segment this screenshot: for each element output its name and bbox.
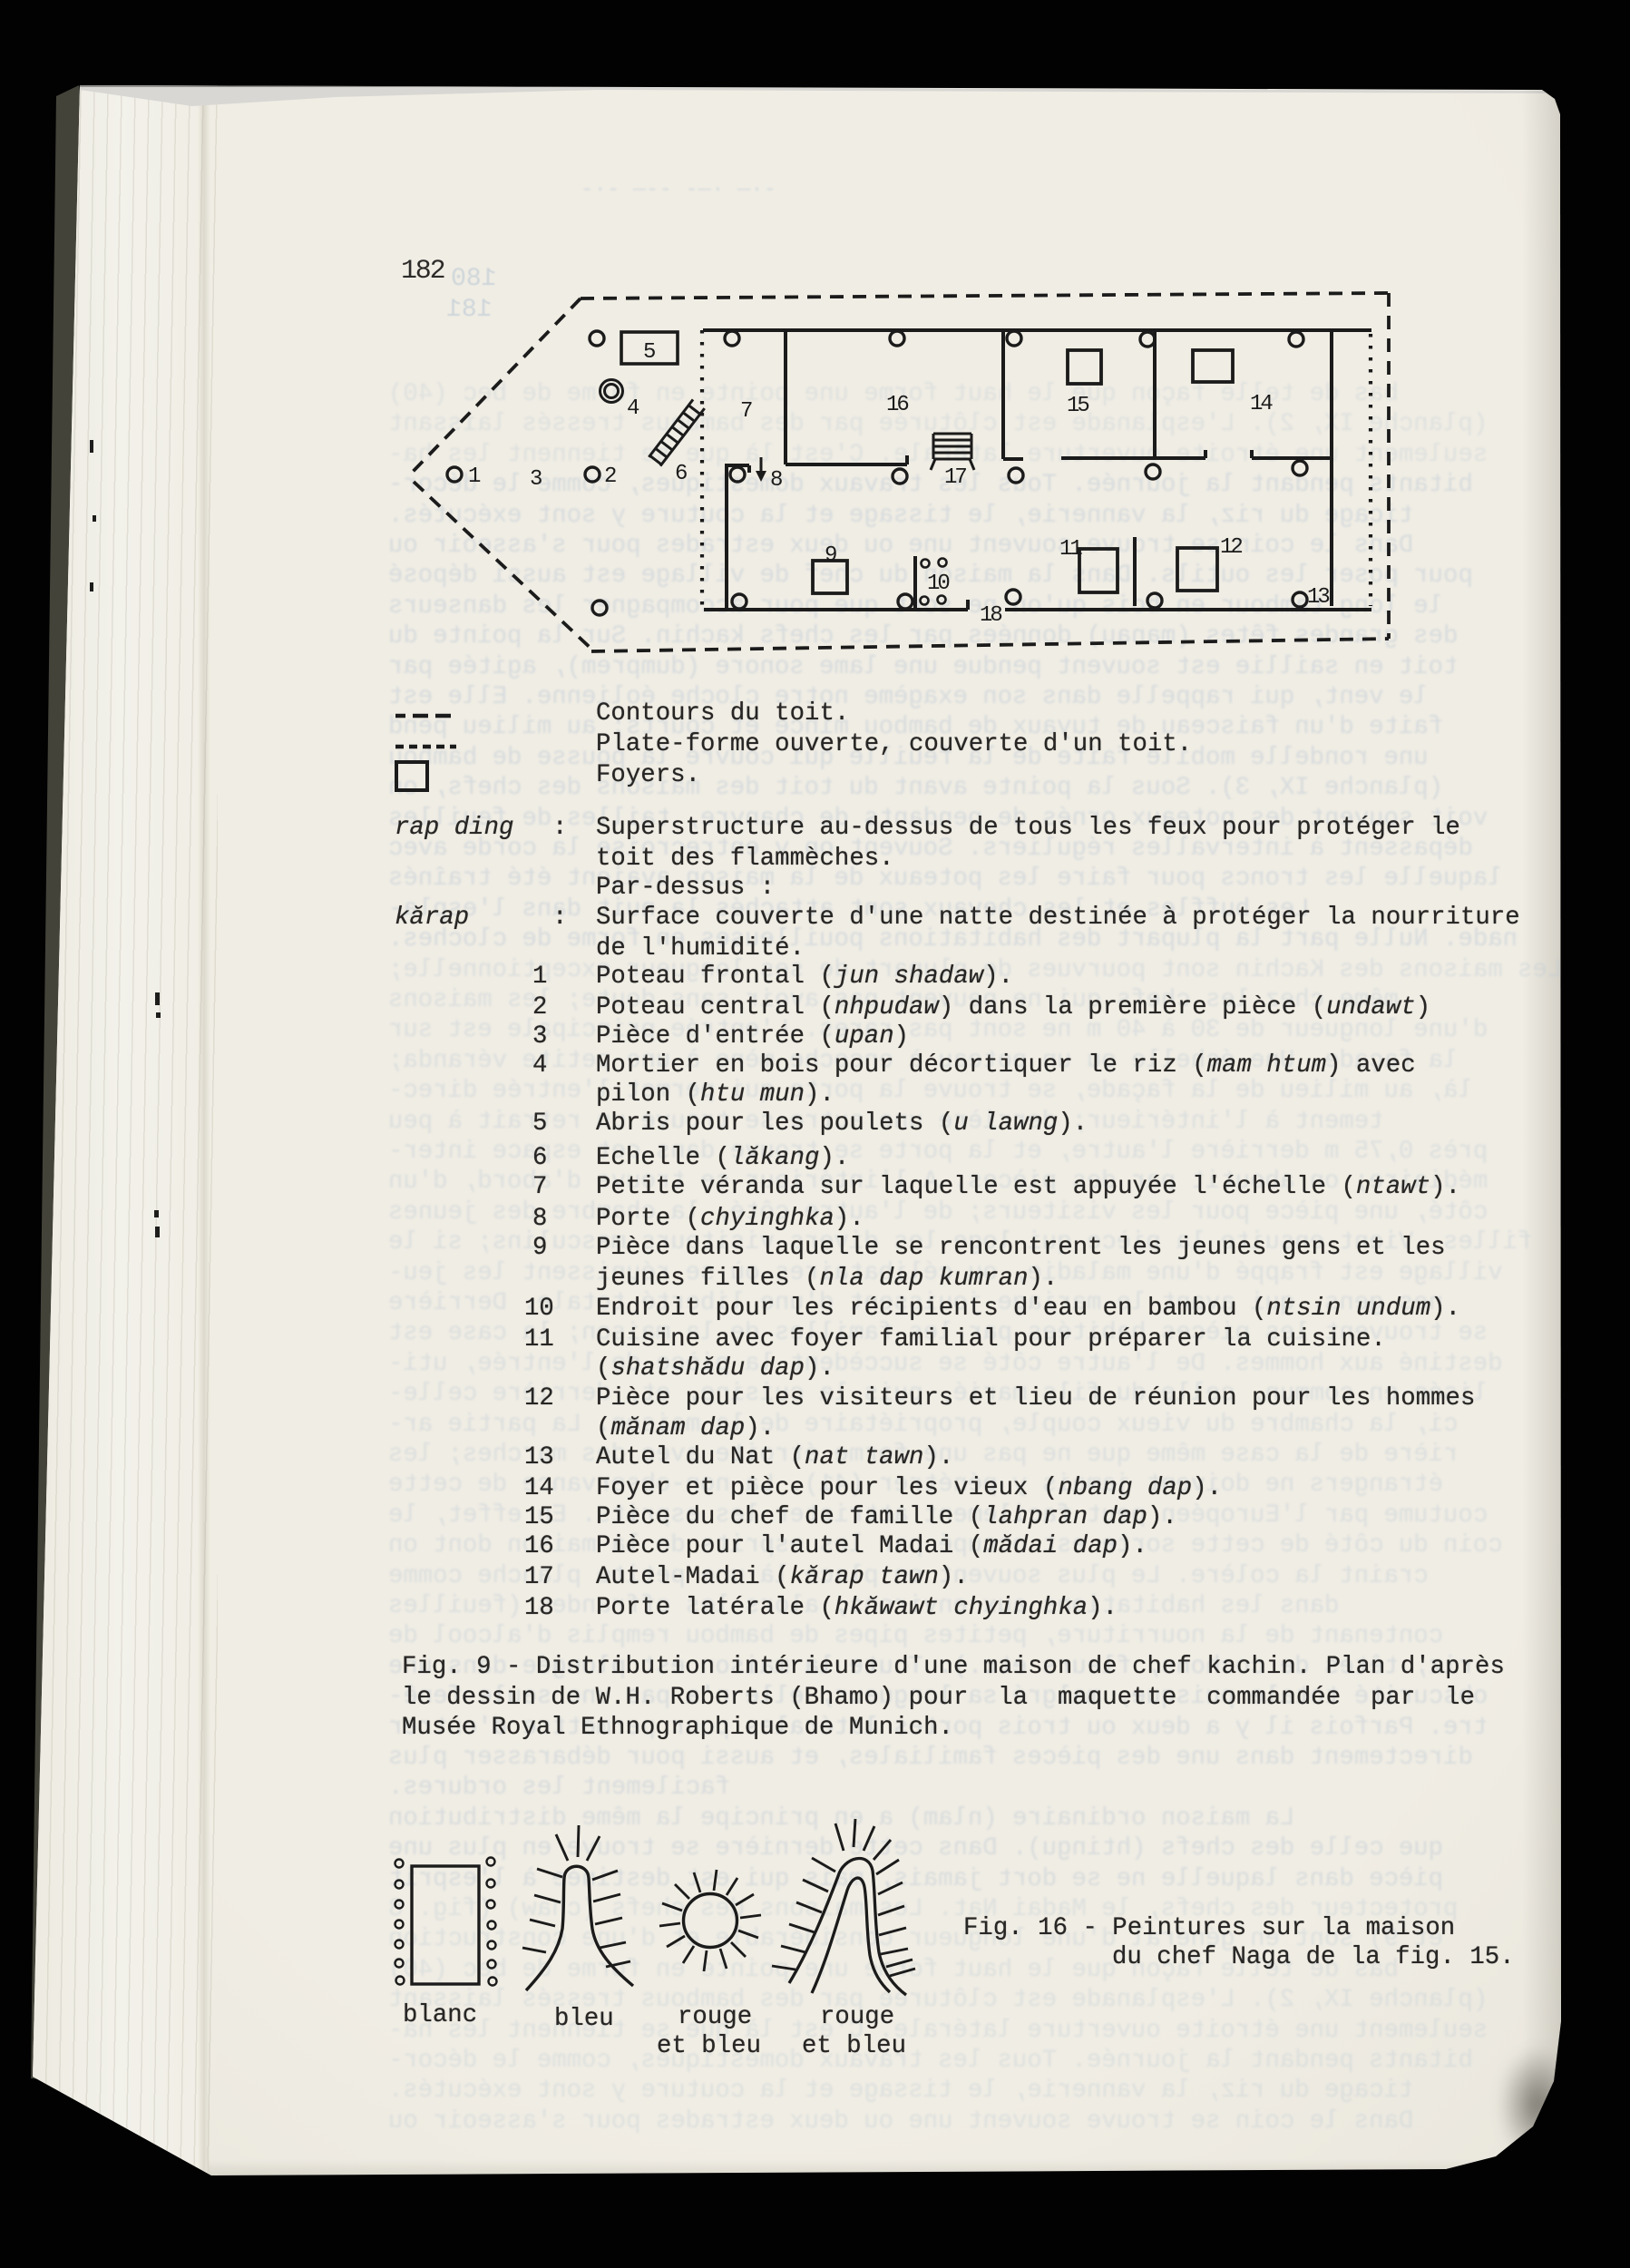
svg-text:10: 10 <box>927 572 949 596</box>
svg-text:14: 14 <box>1250 392 1273 416</box>
svg-text:17: 17 <box>944 465 966 490</box>
svg-text:11: 11 <box>1059 537 1082 562</box>
svg-text:9: 9 <box>825 543 836 568</box>
svg-text:7: 7 <box>740 399 752 424</box>
svg-text:6: 6 <box>675 462 687 486</box>
svg-text:15: 15 <box>1067 394 1088 418</box>
svg-text:2: 2 <box>604 464 616 489</box>
svg-text:18: 18 <box>980 603 1001 628</box>
svg-text:3: 3 <box>530 467 542 492</box>
svg-text:8: 8 <box>770 468 782 493</box>
svg-text:4: 4 <box>627 396 639 421</box>
svg-text:13: 13 <box>1307 585 1329 610</box>
svg-text:12: 12 <box>1220 535 1242 560</box>
svg-text:16: 16 <box>886 393 908 417</box>
svg-text:5: 5 <box>643 340 655 365</box>
svg-text:1: 1 <box>468 464 481 489</box>
